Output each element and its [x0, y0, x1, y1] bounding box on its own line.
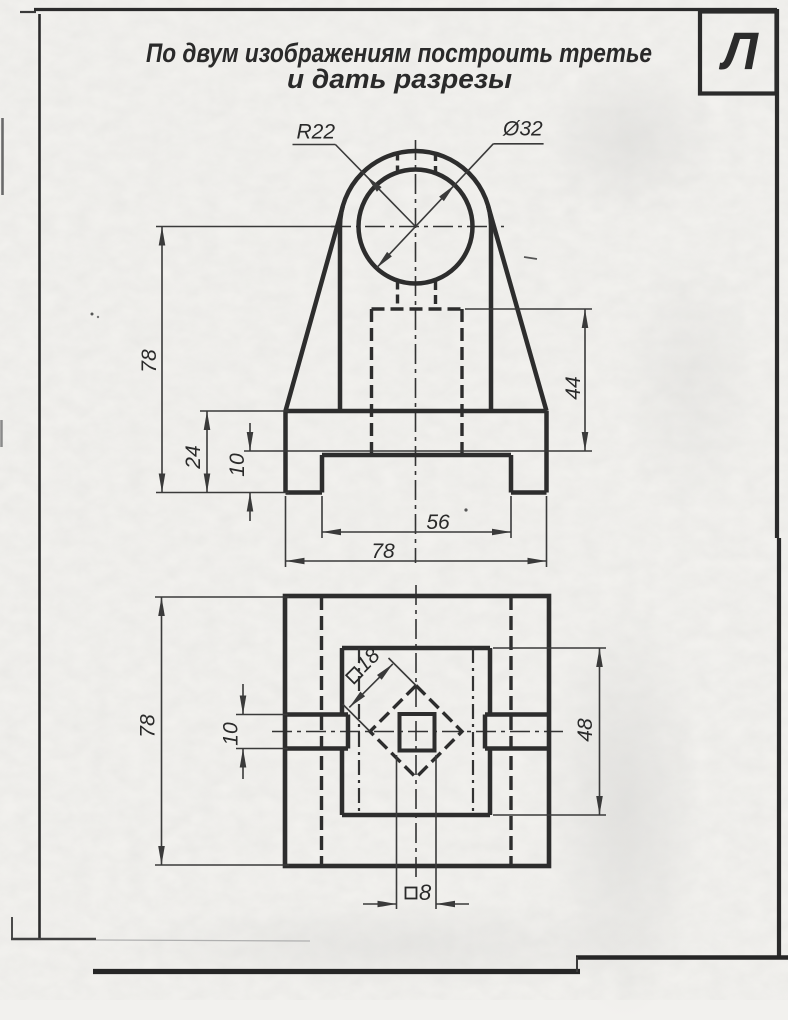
- svg-text:24: 24: [182, 445, 205, 469]
- svg-text:Л: Л: [718, 22, 760, 81]
- svg-text:78: 78: [371, 540, 395, 563]
- svg-text:48: 48: [574, 718, 597, 742]
- svg-text:78: 78: [137, 714, 160, 738]
- svg-text:R22: R22: [297, 121, 336, 144]
- svg-text:8: 8: [419, 880, 432, 905]
- svg-text:10: 10: [220, 722, 243, 746]
- svg-text:10: 10: [226, 453, 249, 477]
- svg-text:78: 78: [138, 349, 161, 373]
- svg-text:Ø32: Ø32: [502, 118, 543, 141]
- svg-text:44: 44: [562, 376, 585, 399]
- svg-text:56: 56: [426, 511, 450, 534]
- svg-text:и дать разрезы: и дать разрезы: [287, 64, 512, 94]
